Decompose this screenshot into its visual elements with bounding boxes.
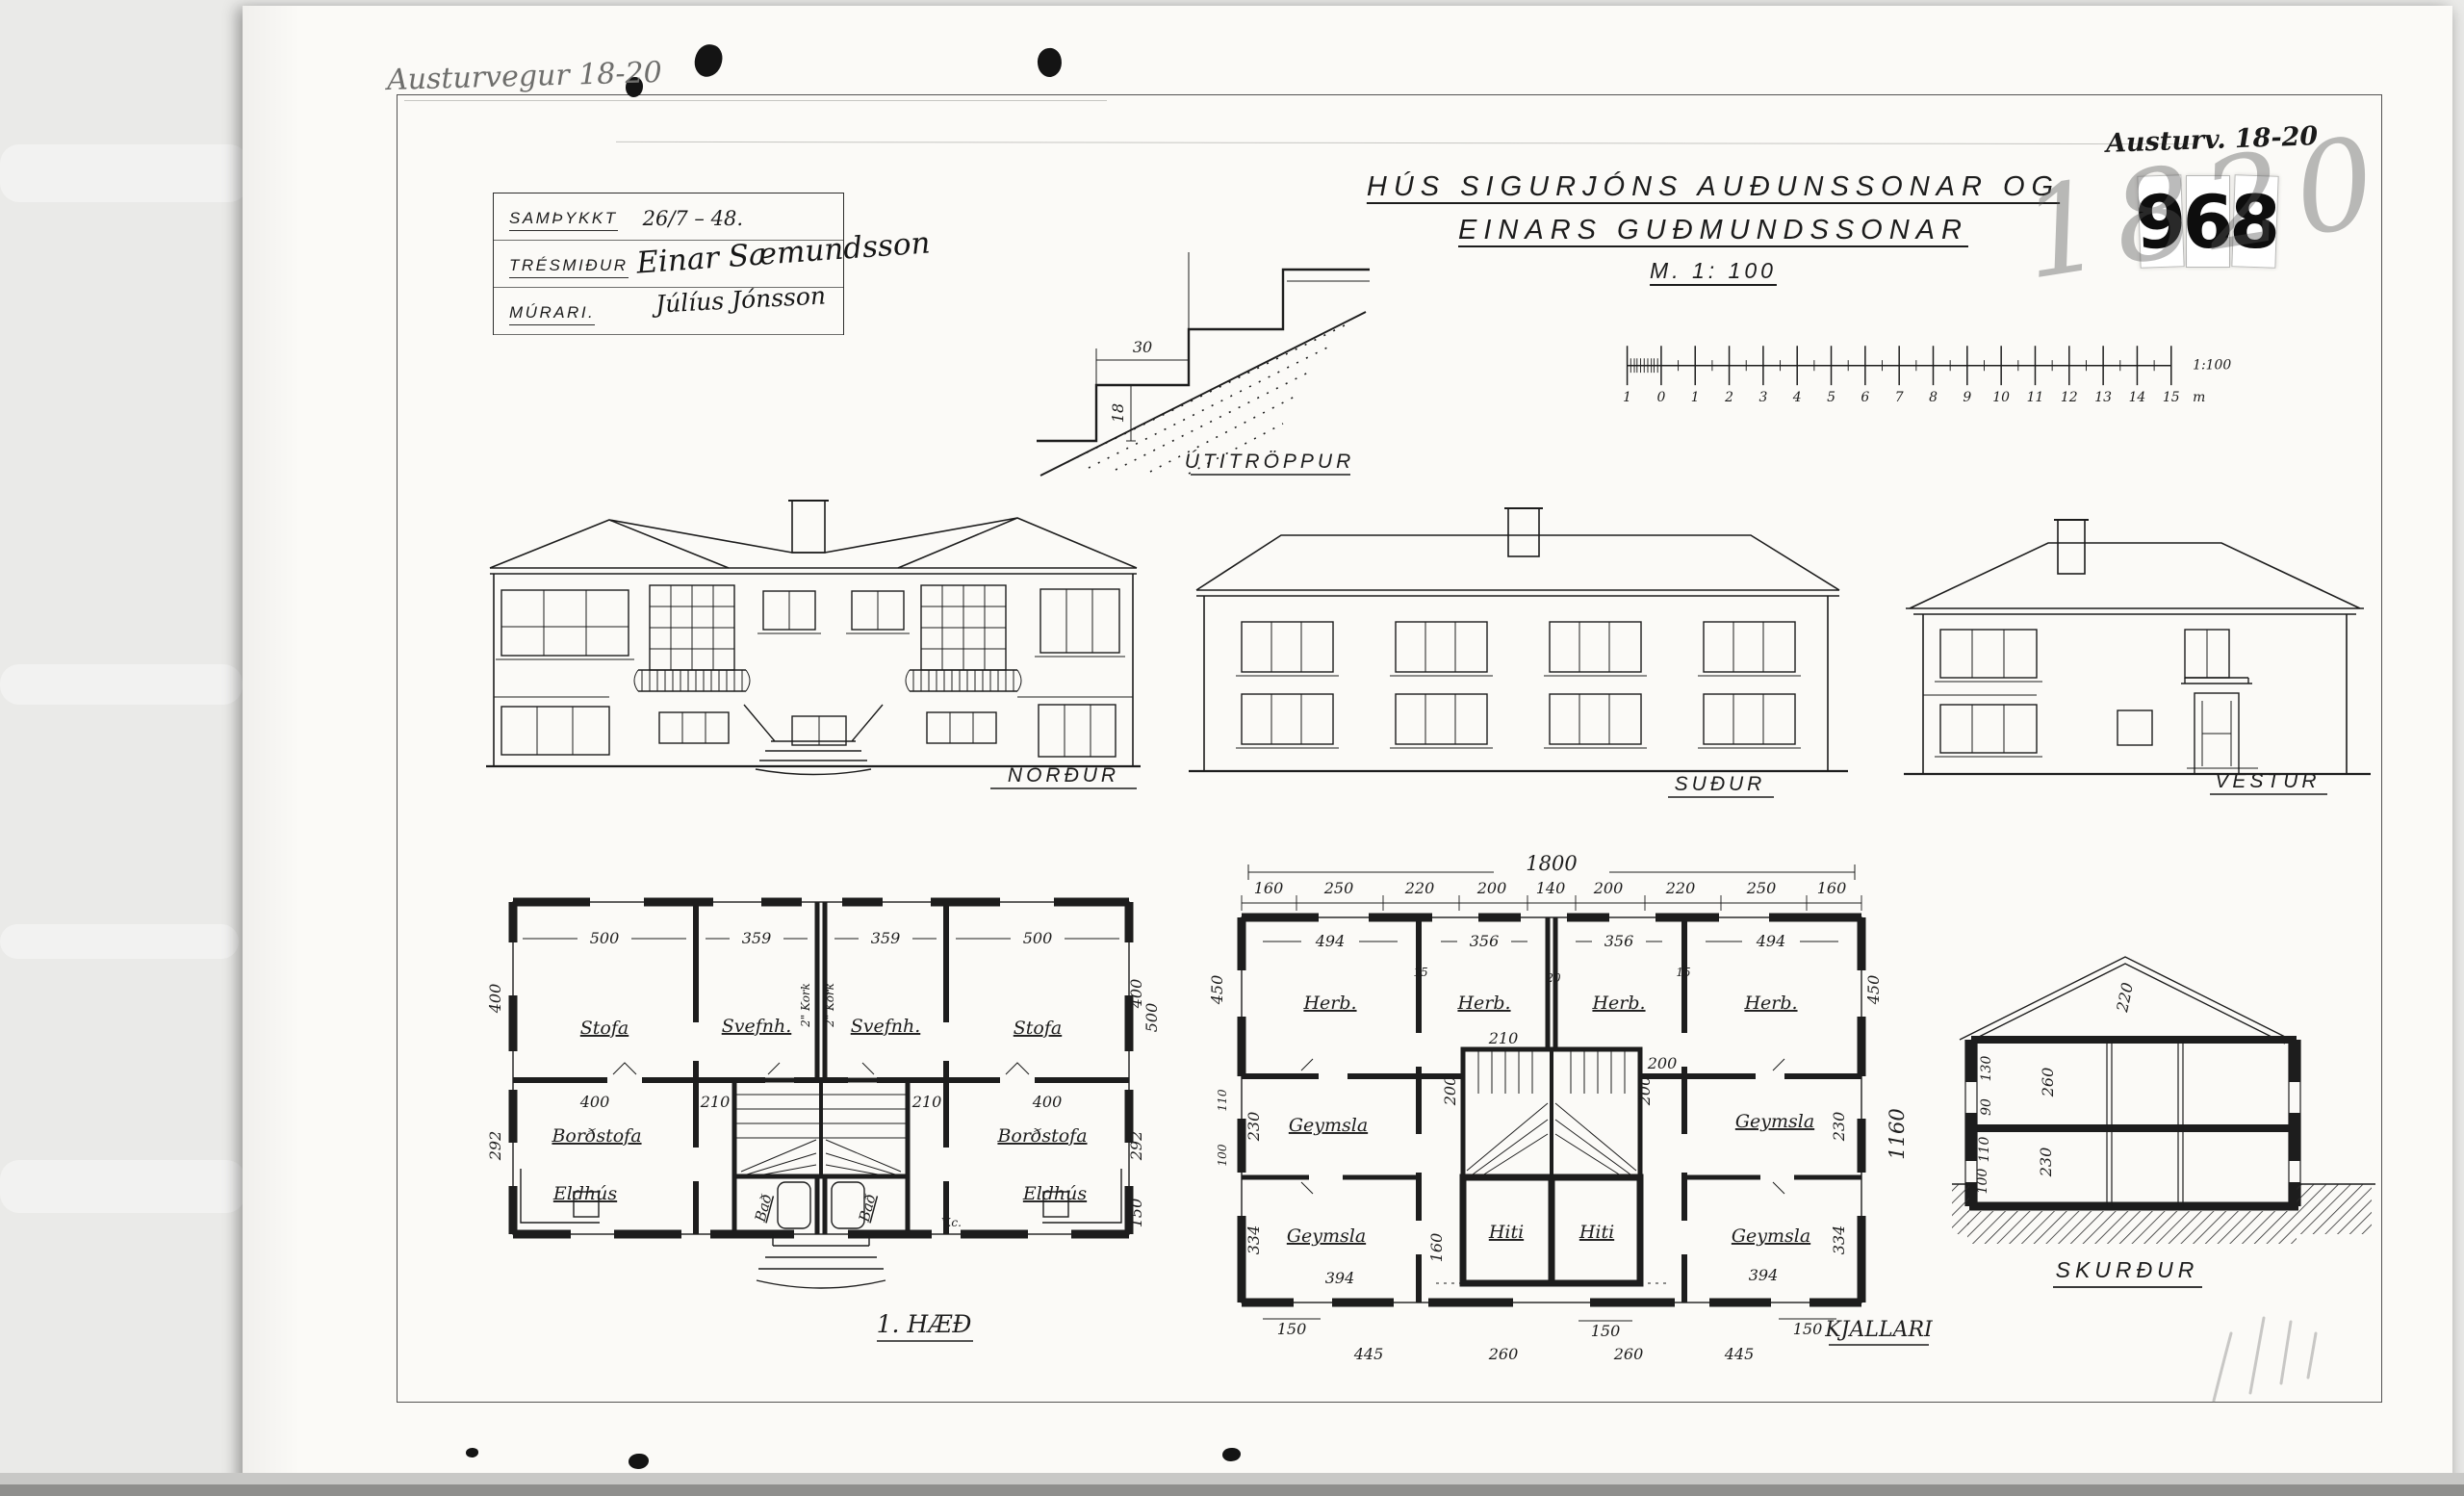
facade (1904, 614, 2371, 774)
archive-number-stamp: 9 6 8 (2139, 175, 2277, 268)
dim-label: 260 (2039, 1068, 2057, 1098)
window (1035, 589, 1125, 657)
dim-label: 500 (590, 929, 620, 947)
dim-label: 356 (1470, 932, 1500, 950)
window (1236, 622, 1339, 676)
room-label: Hiti (1488, 1222, 1524, 1243)
window (1544, 622, 1647, 676)
chimney (2058, 520, 2085, 574)
scale-bar-numbers: 1 0 1 2 3 4 5 6 7 8 9 10 11 12 13 14 15 … (1623, 357, 2231, 404)
dim-label: 450 (1208, 975, 1226, 1006)
room-label: Stofa (1014, 1018, 1062, 1039)
dim-label: 260 (1613, 1345, 1644, 1363)
dim-label: 150 (1591, 1322, 1621, 1340)
scan-edge (0, 1484, 2464, 1496)
roof (1906, 520, 2364, 614)
window (1935, 630, 2042, 682)
dim-label: 210 (700, 1093, 731, 1111)
dim-label: 160 (1427, 1233, 1446, 1263)
elevation-south-label: SUÐUR (1675, 773, 1766, 795)
scan-streak (0, 924, 239, 959)
elevation-north: NORÐUR (486, 499, 1141, 789)
dim-label: 160 (1817, 879, 1847, 897)
window (1698, 622, 1801, 676)
ground-hatch (1967, 1211, 2297, 1244)
drawing-scale: M. 1: 100 (1650, 258, 1777, 283)
window (1935, 705, 2042, 757)
ground-hatch (2297, 1184, 2372, 1234)
window (927, 712, 996, 743)
overall-dimension: 1800 (1248, 852, 1855, 880)
approved-label: SAMÞYKKT (509, 209, 618, 231)
dim-label: 15 (1413, 966, 1427, 979)
dim-label: 220 (1404, 879, 1435, 897)
balcony-railing (906, 670, 1021, 691)
room-label: Bað (855, 1192, 879, 1225)
room-label: Eldhús (1022, 1183, 1088, 1204)
dim-label: 150 (1127, 1199, 1145, 1228)
dim-label: 130 (1979, 1056, 1994, 1082)
dim-label: 230 (1245, 1112, 1263, 1143)
stair-core (734, 1080, 908, 1176)
dim-label: 292 (486, 1131, 504, 1162)
tread-dimension: 30 (1133, 338, 1152, 356)
dim-label: 394 (1325, 1269, 1355, 1287)
tick-label: 3 (1758, 390, 1767, 405)
dim-label: 200 (1441, 1076, 1459, 1107)
dim-label: 150 (1793, 1320, 1823, 1338)
scan-streak (0, 144, 248, 202)
room-label: Geymsla (1289, 1115, 1368, 1136)
ruled-line (404, 100, 1107, 101)
dim-label: 292 (1127, 1131, 1145, 1162)
carpenter-label: TRÉSMIÐUR (509, 256, 629, 278)
plan-basement: 1800 160 250 220 200 140 200 220 250 160 (1205, 845, 1937, 1415)
wall-material-label: 2" Kork (799, 983, 812, 1028)
stair-core (1463, 1049, 1640, 1177)
tick-label: 6 (1861, 390, 1869, 405)
window (846, 591, 910, 633)
dim-label: 20 (1545, 971, 1561, 985)
walls-and-slabs (1965, 1040, 2300, 1206)
tick-label: 0 (1656, 390, 1665, 405)
room-label: Geymsla (1735, 1111, 1814, 1132)
dim-label: 494 (1756, 932, 1786, 950)
approval-box: SAMÞYKKT 26/7 – 48. TRÉSMIÐUR MÚRARI. Ei… (493, 193, 844, 335)
window (659, 712, 729, 743)
dim-label: 150 (1277, 1320, 1307, 1338)
upper-windows (496, 585, 1125, 691)
dim-label: 359 (871, 929, 901, 947)
dim-label: 260 (1488, 1345, 1519, 1363)
dim-label: 445 (1353, 1345, 1384, 1363)
scale-bar: 1 0 1 2 3 4 5 6 7 8 9 10 11 12 13 14 15 … (1609, 337, 2245, 412)
elevation-west-label: VESTUR (2215, 770, 2320, 792)
windows (1935, 630, 2262, 774)
chimney (792, 501, 825, 553)
dim-label: 250 (1746, 879, 1777, 897)
window (1390, 622, 1493, 676)
room-label: Bað (751, 1192, 775, 1225)
room-label: Svefnh. (722, 1016, 792, 1037)
segment-dimensions: 160 250 220 200 140 200 220 250 160 (1242, 879, 1861, 911)
dim-label: 200 (1635, 1076, 1654, 1107)
window (501, 707, 609, 755)
approved-date: 26/7 – 48. (643, 207, 743, 230)
dim-label: 400 (579, 1093, 610, 1111)
stair-dimensions: 30 18 (1096, 338, 1189, 441)
dim-label: 15 (1676, 966, 1690, 979)
dim-label: 90 (1979, 1098, 1994, 1116)
window (2185, 630, 2229, 678)
entrance-porch (757, 1234, 885, 1288)
room-label: Svefnh. (851, 1016, 921, 1037)
approval-row-approved: SAMÞYKKT 26/7 – 48. (494, 193, 843, 241)
room-label: Herb. (1743, 993, 1797, 1014)
stair-detail-drawing: 30 18 ÚTITRÖPPUR (1035, 252, 1372, 483)
balcony-railing (634, 670, 750, 691)
room-label: Geymsla (1287, 1225, 1366, 1247)
dim-label: 220 (2113, 981, 2137, 1015)
tick-label: 14 (2129, 390, 2146, 405)
dim-label: 200 (1476, 879, 1507, 897)
balcony-door (650, 585, 734, 670)
room-label: Geymsla (1732, 1225, 1810, 1247)
lower-windows (1236, 694, 1801, 748)
entrance-steps (744, 705, 883, 775)
bottom-dim-labels: 150 150 150 445 260 260 445 (1263, 1319, 1836, 1363)
window (757, 591, 821, 633)
stair-profile (1037, 252, 1370, 476)
roof (490, 501, 1137, 574)
chimney (1508, 508, 1539, 556)
roof (1196, 508, 1839, 596)
dim-label: 250 (1323, 879, 1354, 897)
dim-label: 110 (1216, 1089, 1229, 1111)
scan-edge (0, 1473, 2464, 1484)
room-label: Eldhús (552, 1183, 618, 1204)
room-label: Stofa (580, 1018, 629, 1039)
riser-dimension: 18 (1109, 403, 1127, 423)
entrance-door (2181, 678, 2262, 774)
room-label: Herb. (1456, 993, 1510, 1014)
dim-label: 334 (1830, 1225, 1848, 1255)
dim-label: 394 (1749, 1266, 1779, 1284)
dim-label: 100 (1216, 1144, 1229, 1166)
ground (1952, 1184, 2375, 1244)
dim-label: 500 (1023, 929, 1053, 947)
dim-label: 210 (1488, 1029, 1519, 1047)
ratio-label: 1:100 (2193, 357, 2231, 373)
tick-label: 2 (1724, 390, 1733, 405)
room-label: Borðstofa (996, 1125, 1087, 1147)
lower-windows (501, 705, 1116, 757)
elevation-north-label: NORÐUR (1008, 764, 1119, 787)
tick-label: 13 (2094, 390, 2112, 405)
dim-label: 1160 (1886, 1108, 1909, 1159)
title-block: HÚS SIGURJÓNS AUÐUNSSONAR OG EINARS GUÐM… (1285, 171, 2142, 284)
section-dimensions: 220 260 130 90 230 110 100 (1975, 981, 2137, 1194)
tick-label: 15 (2163, 390, 2180, 405)
dim-label: 220 (1665, 879, 1696, 897)
stair-detail-label: ÚTITRÖPPUR (1185, 451, 1355, 473)
section-drawing: 220 260 130 90 230 110 100 SKURÐUR (1952, 945, 2399, 1315)
window (496, 590, 634, 659)
stamp-digit: 8 (2231, 174, 2278, 269)
scale-bar-ruler (1628, 346, 2171, 385)
mason-label: MÚRARI. (509, 303, 595, 325)
window (1698, 694, 1801, 748)
elevation-south: SUÐUR (1189, 499, 1848, 799)
elevation-west: VESTUR (1904, 512, 2371, 803)
dim-label: 500 (1142, 1003, 1161, 1033)
dim-label: 445 (1724, 1345, 1755, 1363)
dim-label: 400 (486, 984, 504, 1015)
room-label: Herb. (1591, 993, 1645, 1014)
title-line-2: EINARS GUÐMUNDSSONAR (1285, 215, 2142, 246)
tick-label: 11 (2027, 390, 2044, 405)
dim-label: 110 (1977, 1137, 1992, 1163)
room-label: V.c. (941, 1216, 962, 1229)
tick-label: 4 (1792, 390, 1802, 405)
scanned-drawing-sheet: Austurvegur 18-20 SAMÞYKKT 26/7 – 48. TR… (0, 0, 2464, 1496)
tick-label: 8 (1929, 390, 1938, 405)
room-label: Borðstofa (551, 1125, 641, 1147)
stamp-digit: 6 (2186, 175, 2230, 268)
window (1039, 705, 1116, 757)
tick-label: 7 (1895, 390, 1904, 405)
tick-label: 9 (1963, 390, 1971, 405)
scan-streak (0, 1160, 245, 1213)
dim-label: 140 (1536, 879, 1566, 897)
dim-label: 200 (1647, 1054, 1678, 1072)
upper-windows (1236, 622, 1801, 676)
tick-label: 1 (1691, 390, 1700, 405)
stamp-digit: 9 (2137, 174, 2184, 269)
tick-label: 1 (1623, 390, 1631, 405)
tick-label: 10 (1992, 390, 2010, 405)
dim-label: 450 (1864, 975, 1883, 1006)
dim-label: 230 (1830, 1112, 1848, 1143)
dim-label: 210 (911, 1093, 942, 1111)
window (2117, 710, 2152, 745)
dim-label: 160 (1254, 879, 1284, 897)
boiler-rooms (1436, 1177, 1667, 1283)
title-line-1: HÚS SIGURJÓNS AUÐUNSSONAR OG (1285, 171, 2142, 203)
window (1236, 694, 1339, 748)
dim-label: 400 (1032, 1093, 1063, 1111)
scan-streak (0, 664, 243, 705)
dim-label: 200 (1593, 879, 1624, 897)
wall-material-label: 2" Kork (823, 983, 836, 1028)
dim-label: 359 (742, 929, 772, 947)
plan-label-basement: KJALLARI (1824, 1318, 1934, 1342)
pencil-scribble-marks (2194, 1285, 2387, 1430)
dim-label: 1800 (1526, 852, 1577, 875)
room-label: Hiti (1578, 1222, 1614, 1243)
section-label: SKURÐUR (2056, 1257, 2199, 1282)
window (1390, 694, 1493, 748)
dim-label: 356 (1604, 932, 1634, 950)
room-label: Herb. (1302, 993, 1356, 1014)
tick-label: 5 (1827, 390, 1835, 405)
facade (486, 574, 1141, 766)
window (1544, 694, 1647, 748)
dim-label: 100 (1975, 1169, 1990, 1195)
ground-hatch (1952, 1184, 1969, 1234)
tick-label: 12 (2061, 390, 2078, 405)
balcony-door (921, 585, 1006, 670)
dim-label: 494 (1315, 932, 1346, 950)
plan-first-floor: 500 359 359 500 400 210 210 400 400 292 … (489, 888, 1163, 1415)
dim-label: 230 (2037, 1148, 2055, 1178)
plan-label-first-floor: 1. HÆÐ (877, 1310, 972, 1338)
unit-label: m (2193, 390, 2205, 405)
dim-label: 334 (1245, 1225, 1263, 1255)
